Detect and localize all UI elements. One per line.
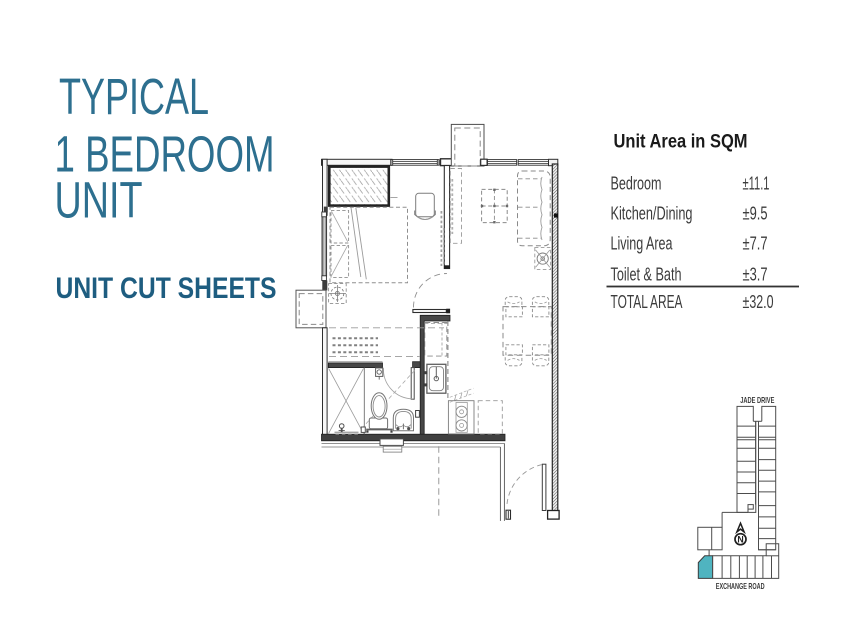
svg-text:JADE DRIVE: JADE DRIVE [740,396,775,405]
svg-text:TOTAL AREA: TOTAL AREA [611,291,683,312]
svg-text:EXCHANGE ROAD: EXCHANGE ROAD [716,582,765,591]
svg-text:UNIT: UNIT [55,172,143,229]
svg-text:Unit Area in SQM: Unit Area in SQM [614,131,748,153]
svg-text:±3.7: ±3.7 [743,264,768,285]
svg-text:±7.7: ±7.7 [743,232,768,253]
svg-text:UNIT CUT SHEETS: UNIT CUT SHEETS [56,272,277,305]
svg-text:N: N [737,534,743,544]
svg-text:±9.5: ±9.5 [743,202,768,223]
svg-text:±11.1: ±11.1 [743,173,770,194]
svg-text:Bedroom: Bedroom [611,173,662,194]
svg-text:Kitchen/Dining: Kitchen/Dining [611,202,693,223]
svg-text:TYPICAL: TYPICAL [59,68,209,125]
svg-text:Living Area: Living Area [611,232,674,253]
svg-text:Toilet & Bath: Toilet & Bath [611,264,682,285]
svg-text:±32.0: ±32.0 [743,291,774,312]
